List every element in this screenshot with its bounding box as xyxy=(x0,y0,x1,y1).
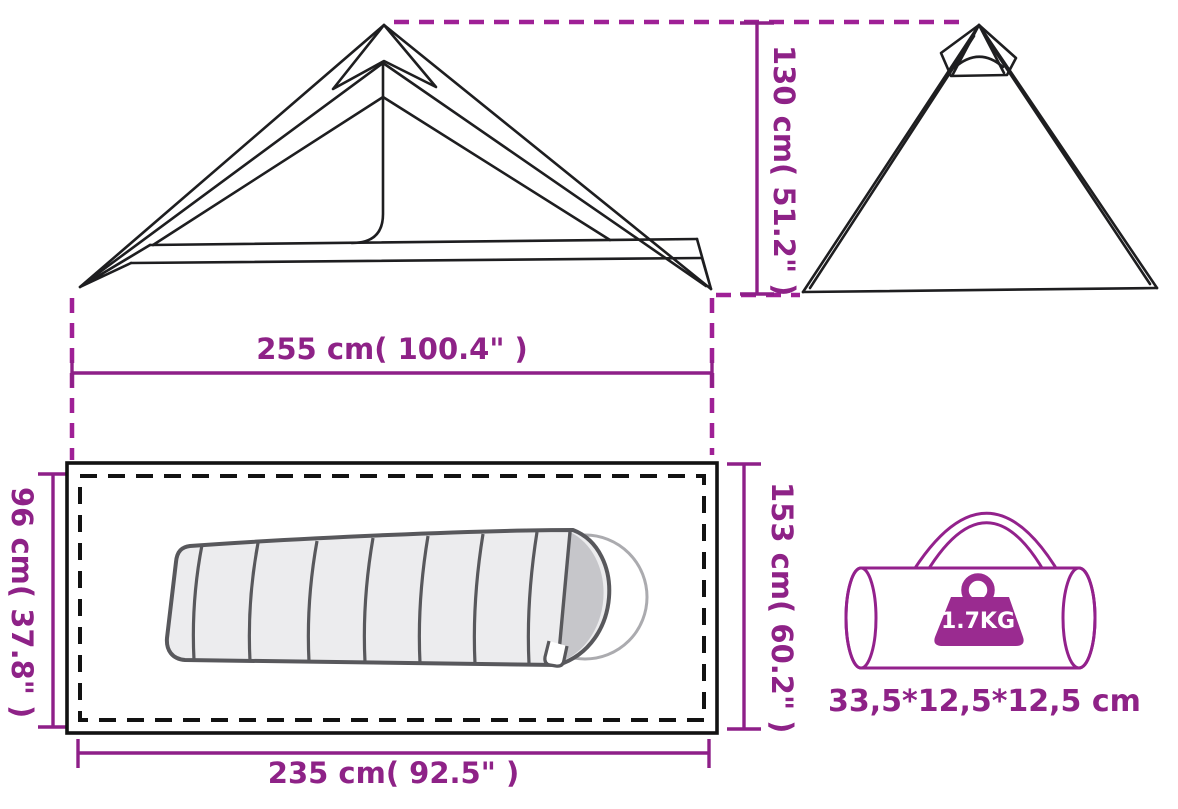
tent-front-outer-right-edge xyxy=(384,25,711,289)
sleeping-bag-illustration xyxy=(167,530,647,666)
dimension-label-floor-depth: 96 cm( 37.8" ) xyxy=(7,487,37,718)
tent-front-inner-right-edge xyxy=(383,63,706,286)
dimension-label-tent-height: 130 cm( 51.2" ) xyxy=(769,45,799,296)
tent-front-inner-left-edge xyxy=(85,63,383,283)
sleeping-bag-body xyxy=(167,530,609,665)
tent-front-outer-left-edge xyxy=(80,25,384,287)
tent-front-face-left-edge xyxy=(153,97,383,245)
dimension-label-tent-width: 255 cm( 100.4" ) xyxy=(72,334,712,364)
tent-front-left-wedge xyxy=(80,245,150,287)
tent-side-outer-left-edge xyxy=(803,25,979,292)
tent-side-base xyxy=(803,288,1157,292)
dimension-line-floor-depth xyxy=(38,474,68,727)
carry-bag-illustration xyxy=(846,513,1095,668)
bag-size-label: 33,5*12,5*12,5 cm xyxy=(828,684,1110,719)
tent-front-base-upper xyxy=(150,239,697,245)
tent-side-inner-right-edge xyxy=(985,36,1150,284)
tent-front-face-right-edge xyxy=(383,97,610,240)
tent-side-view-drawing xyxy=(803,25,1157,292)
dimension-line-floor-side xyxy=(727,464,761,729)
tent-front-base-lower xyxy=(131,258,702,263)
tent-front-view-drawing xyxy=(80,25,711,289)
dimension-label-floor-width: 235 cm( 92.5" ) xyxy=(78,758,709,788)
tent-front-pole xyxy=(352,63,383,243)
tent-dimension-diagram: 255 cm( 100.4" ) 235 cm( 92.5" ) 130 cm(… xyxy=(0,0,1178,809)
tent-side-outer-right-edge xyxy=(979,25,1157,288)
dimension-label-floor-side: 153 cm( 60.2" ) xyxy=(767,482,797,733)
bag-weight-label: 1.7KG xyxy=(928,611,1028,633)
